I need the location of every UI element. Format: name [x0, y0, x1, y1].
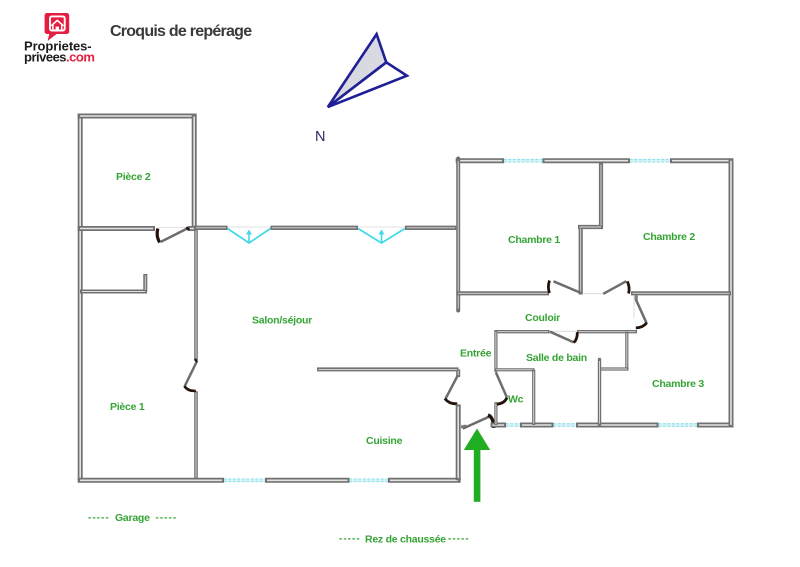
svg-text:Pièce 1: Pièce 1	[110, 401, 145, 413]
svg-text:Chambre 2: Chambre 2	[643, 231, 695, 243]
svg-text:-----: -----	[156, 513, 178, 524]
svg-text:Wc: Wc	[508, 393, 524, 405]
svg-text:Couloir: Couloir	[525, 312, 560, 324]
svg-text:Chambre 3: Chambre 3	[652, 378, 704, 390]
svg-text:Salon/séjour: Salon/séjour	[252, 315, 312, 327]
svg-text:Entrée: Entrée	[460, 348, 492, 360]
svg-text:Chambre 1: Chambre 1	[508, 234, 560, 246]
svg-text:Cuisine: Cuisine	[366, 435, 403, 447]
svg-text:Rez de chaussée: Rez de chaussée	[365, 534, 446, 546]
svg-text:Pièce 2: Pièce 2	[116, 171, 151, 183]
svg-text:privees.com: privees.com	[24, 49, 94, 64]
svg-text:-----: -----	[88, 513, 110, 524]
svg-text:N: N	[315, 129, 325, 145]
svg-text:Salle de bain: Salle de bain	[526, 352, 587, 364]
svg-text:-----: -----	[448, 534, 470, 545]
svg-text:Garage: Garage	[115, 512, 150, 524]
svg-text:Croquis de repérage: Croquis de repérage	[110, 23, 252, 40]
svg-text:-----: -----	[339, 534, 361, 545]
